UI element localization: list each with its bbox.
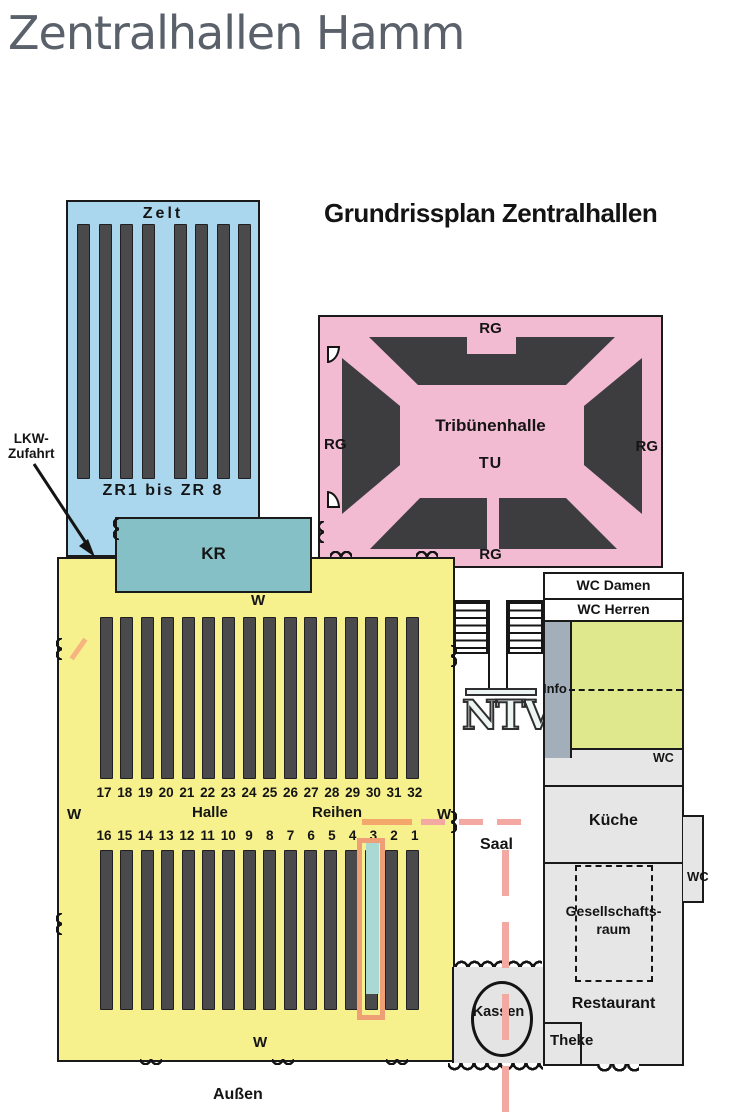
row-number: 22 [198, 785, 218, 800]
door-notch-icon [416, 549, 438, 557]
kassen-area: Kassen [452, 967, 543, 1063]
staircase-left [454, 600, 488, 654]
row-number: 12 [177, 828, 197, 843]
row-number: 21 [177, 785, 197, 800]
exhibition-row-bar [385, 617, 398, 779]
row-number: 20 [156, 785, 176, 800]
aussen-label: Außen [213, 1086, 263, 1104]
restaurant-bottom-door-notches [597, 1064, 639, 1074]
red-dashed-line-vertical [502, 850, 509, 1114]
w-label-left: W [67, 807, 81, 824]
door-notch-icon [54, 913, 62, 935]
zelt-label: Zelt [68, 205, 258, 223]
exhibition-row-bar [202, 617, 215, 779]
door-notch-icon [272, 1059, 294, 1067]
plan-heading: Grundrissplan Zentralhallen [324, 199, 657, 228]
exhibition-row-bar [202, 850, 215, 1010]
kueche-bottom-wall [545, 862, 682, 864]
row-number: 29 [343, 785, 363, 800]
page-title: Zentralhallen Hamm [8, 6, 464, 60]
door-notch-icon [451, 645, 459, 667]
exhibition-row-bar [263, 617, 276, 779]
staircase-right [508, 600, 543, 654]
exhibition-row-bar [161, 850, 174, 1010]
exhibition-row-bar [99, 224, 112, 479]
exhibition-row-bar [243, 617, 256, 779]
row-number: 7 [280, 828, 300, 843]
right-building: WC Damen WC Herren Info WC Küche Gesells… [543, 572, 684, 1066]
row-number: 23 [218, 785, 238, 800]
exhibition-row-bar [324, 617, 337, 779]
row-number: 2 [384, 828, 404, 843]
halle-top-bars [100, 617, 419, 779]
exhibition-row-bar [406, 850, 419, 1010]
exhibition-row-bar [120, 224, 133, 479]
rg-label-top: RG [320, 321, 661, 338]
row-number: 30 [363, 785, 383, 800]
page: { "page": { "title": "Zentralhallen Hamm… [0, 0, 750, 1114]
door-notch-icon [330, 549, 352, 557]
zelt-bars [77, 224, 251, 479]
kueche-label: Küche [545, 812, 682, 830]
wc-herren-room: WC Herren [545, 600, 682, 622]
tribuenenhalle-label: Tribünenhalle [320, 417, 661, 436]
row-number: 1 [405, 828, 425, 843]
exhibition-row-bar [161, 617, 174, 779]
zelt-bar-group-right [174, 224, 252, 479]
exhibition-row-bar [141, 617, 154, 779]
gesellschaftsraum-label-line2: raum [545, 922, 682, 937]
wc-right-label: WC [687, 870, 709, 884]
row-number: 16 [94, 828, 114, 843]
zelt-bar-group-left [77, 224, 155, 479]
reihen-label: Reihen [312, 805, 362, 822]
exhibition-row-bar [120, 850, 133, 1010]
rg-label-left: RG [324, 437, 347, 454]
wc-herren-label: WC Herren [545, 602, 682, 617]
exhibition-row-bar [365, 617, 378, 779]
kr-area: KR [115, 517, 312, 593]
row-number: 10 [218, 828, 238, 843]
halle-top-row-numbers: 17181920212223242526272829303132 [94, 785, 425, 800]
exhibition-row-bar [195, 224, 208, 479]
row-number: 28 [322, 785, 342, 800]
exhibition-row-bar [174, 224, 187, 479]
orange-marker-line [362, 819, 412, 825]
exhibition-row-bar [142, 224, 155, 479]
exhibition-row-bar [120, 617, 133, 779]
row-number: 26 [280, 785, 300, 800]
wc-damen-label: WC Damen [545, 578, 682, 593]
exhibition-row-bar [77, 224, 90, 479]
exhibition-row-bar [141, 850, 154, 1010]
tribuenenhalle-code: TU [320, 455, 661, 473]
exhibition-row-bar [217, 224, 230, 479]
row-number: 11 [198, 828, 218, 843]
ntv-logo: NTV [462, 688, 540, 736]
exhibition-row-bar [406, 617, 419, 779]
lkw-line1: LKW- [8, 432, 55, 447]
row-number: 24 [239, 785, 259, 800]
w-label-bottom: W [253, 1035, 267, 1052]
exhibition-row-bar [222, 850, 235, 1010]
door-notch-icon [386, 1059, 408, 1067]
row-number: 6 [301, 828, 321, 843]
staircase-pillar [488, 600, 508, 688]
rg-label-right: RG [636, 439, 659, 456]
exhibition-row-bar [100, 617, 113, 779]
exhibition-row-bar [284, 617, 297, 779]
exhibition-row-bar [345, 850, 358, 1010]
kassen-label: Kassen [454, 1005, 543, 1021]
row-number: 17 [94, 785, 114, 800]
exhibition-row-bar [345, 617, 358, 779]
red-dashed-line-horizontal [421, 819, 533, 825]
tribuenenhalle-area: RG RG RG RG Tribünenhalle TU [318, 315, 663, 568]
row-number: 9 [239, 828, 259, 843]
row-number: 19 [135, 785, 155, 800]
w-label-top: W [251, 593, 265, 610]
exhibition-row-bar [182, 850, 195, 1010]
wc-mid-label: WC [653, 752, 674, 766]
exhibition-row-bar [263, 850, 276, 1010]
orange-marker-dash [70, 638, 88, 661]
halle-area: W 17181920212223242526272829303132 Halle… [57, 557, 455, 1062]
exhibition-row-bar [243, 850, 256, 1010]
ntv-logo-text: NTV [462, 696, 540, 736]
row-number: 13 [156, 828, 176, 843]
row-number: 15 [115, 828, 135, 843]
row-number: 5 [322, 828, 342, 843]
door-notch-icon [140, 1059, 162, 1067]
green-room-dashed-divider [569, 689, 682, 691]
highlight-outline-row-3 [357, 838, 385, 1020]
exhibition-row-bar [100, 850, 113, 1010]
row-number: 25 [260, 785, 280, 800]
exhibition-row-bar [182, 617, 195, 779]
lkw-arrow-icon [22, 456, 108, 564]
kassen-bottom-door-arcs [448, 1063, 543, 1073]
exhibition-row-bar [385, 850, 398, 1010]
exhibition-row-bar [304, 617, 317, 779]
kr-label: KR [117, 545, 310, 564]
exhibition-row-bar [238, 224, 251, 479]
exhibition-row-bar [222, 617, 235, 779]
door-notch-icon [111, 518, 119, 540]
theke-label: Theke [550, 1033, 593, 1050]
kueche-top-wall [545, 785, 682, 787]
row-number: 32 [405, 785, 425, 800]
halle-label: Halle [192, 805, 228, 822]
row-number: 14 [135, 828, 155, 843]
door-notch-icon [54, 638, 62, 660]
exhibition-row-bar [304, 850, 317, 1010]
wc-right-room [683, 815, 704, 903]
exhibition-row-bar [284, 850, 297, 1010]
row-number: 31 [384, 785, 404, 800]
door-notch-icon [316, 521, 324, 543]
row-number: 27 [301, 785, 321, 800]
wc-damen-room: WC Damen [545, 574, 682, 600]
door-symbol-bottom-left [327, 491, 340, 508]
green-room [572, 622, 682, 750]
row-number: 8 [260, 828, 280, 843]
gesellschaftsraum-label-line1: Gesellschafts- [545, 904, 682, 919]
row-number: 18 [115, 785, 135, 800]
exhibition-row-bar [324, 850, 337, 1010]
door-symbol-top-left [327, 346, 340, 363]
restaurant-label: Restaurant [545, 995, 682, 1013]
info-label: Info [543, 682, 567, 696]
